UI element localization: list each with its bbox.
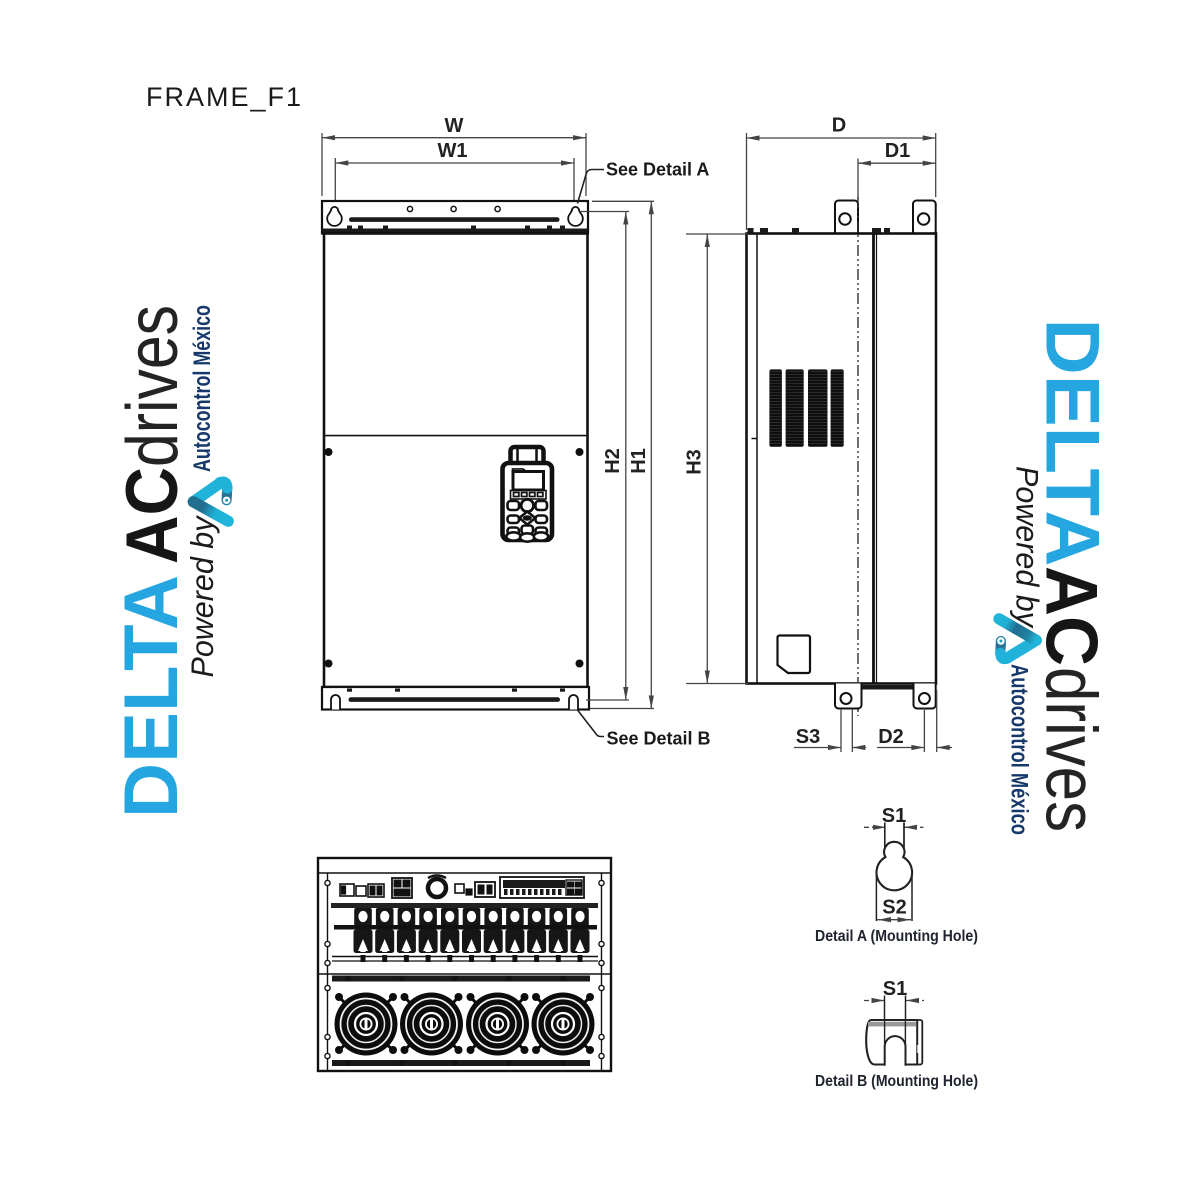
- svg-text:D2: D2: [878, 726, 904, 748]
- svg-text:Autocontrol México: Autocontrol México: [1006, 664, 1033, 835]
- svg-text:See Detail A: See Detail A: [606, 160, 709, 180]
- svg-text:Detail B (Mounting Hole): Detail B (Mounting Hole): [815, 1073, 978, 1090]
- svg-text:drives: drives: [113, 305, 193, 467]
- svg-text:D: D: [832, 115, 846, 137]
- svg-text:AC: AC: [112, 467, 193, 564]
- svg-text:W: W: [445, 115, 464, 137]
- svg-text:See Detail B: See Detail B: [607, 729, 711, 749]
- svg-text:W1: W1: [438, 140, 468, 162]
- svg-text:S3: S3: [796, 726, 820, 748]
- svg-text:Powered by: Powered by: [184, 514, 220, 677]
- svg-text:S1: S1: [883, 978, 907, 1000]
- svg-text:FRAME_F1: FRAME_F1: [146, 82, 303, 112]
- svg-text:S2: S2: [882, 897, 906, 919]
- svg-text:H2: H2: [602, 448, 624, 474]
- svg-text:Detail A (Mounting Hole): Detail A (Mounting Hole): [815, 928, 978, 945]
- svg-text:drives: drives: [1031, 667, 1111, 832]
- svg-text:D1: D1: [885, 140, 911, 162]
- svg-text:Autocontrol México: Autocontrol México: [189, 305, 216, 472]
- svg-text:H3: H3: [684, 449, 706, 475]
- svg-text:H1: H1: [628, 448, 650, 474]
- svg-text:Powered by: Powered by: [1010, 466, 1046, 629]
- svg-text:DELTA: DELTA: [109, 575, 194, 818]
